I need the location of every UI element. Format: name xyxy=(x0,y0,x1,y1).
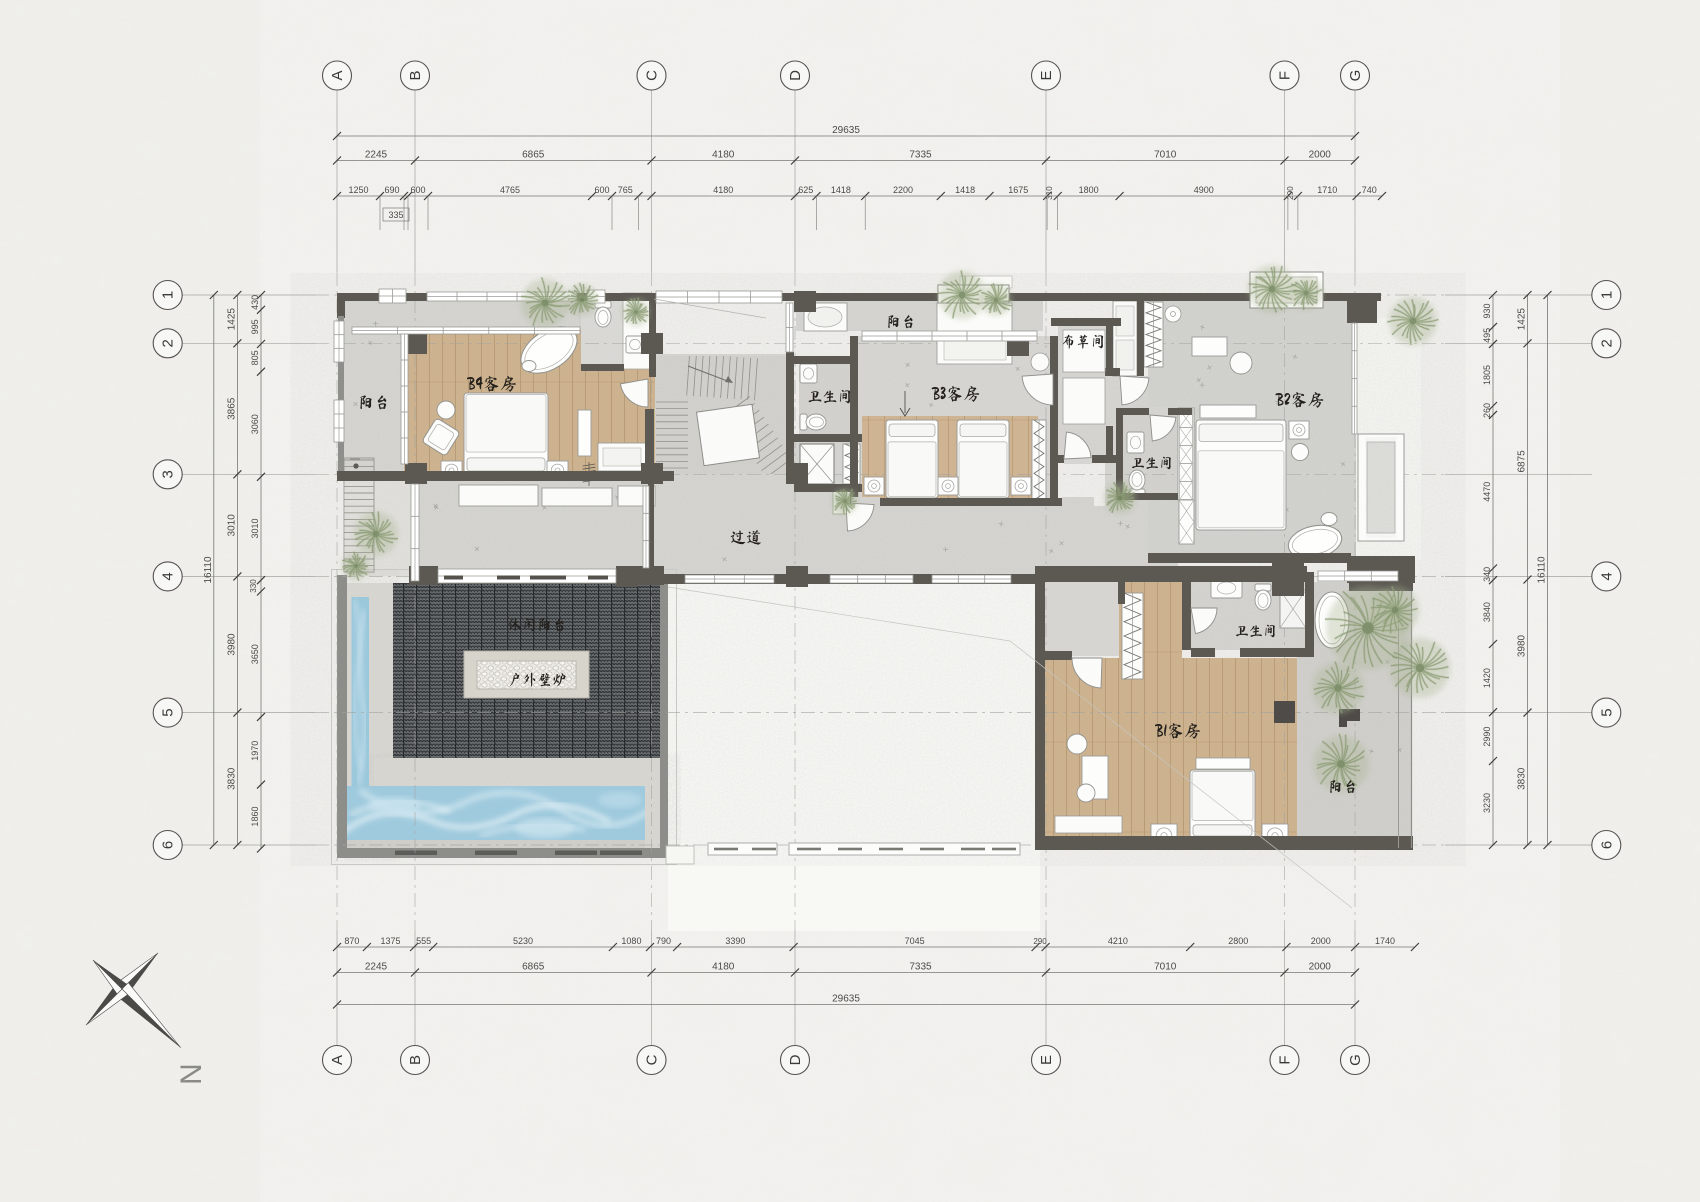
svg-text:1: 1 xyxy=(1598,291,1615,299)
svg-text:4765: 4765 xyxy=(500,185,520,195)
svg-text:4: 4 xyxy=(1598,572,1615,580)
svg-text:740: 740 xyxy=(1362,185,1377,195)
svg-text:16110: 16110 xyxy=(203,556,214,584)
svg-text:2245: 2245 xyxy=(365,962,388,973)
svg-text:2245: 2245 xyxy=(365,150,388,161)
svg-text:340: 340 xyxy=(1482,567,1492,582)
svg-text:G: G xyxy=(1347,1054,1364,1066)
svg-text:430: 430 xyxy=(250,295,260,310)
svg-text:5: 5 xyxy=(1598,708,1615,716)
svg-text:1: 1 xyxy=(160,291,177,299)
svg-text:765: 765 xyxy=(618,185,633,195)
svg-text:600: 600 xyxy=(410,185,425,195)
svg-text:1860: 1860 xyxy=(250,807,260,827)
svg-text:2000: 2000 xyxy=(1309,962,1332,973)
svg-text:3010: 3010 xyxy=(226,514,237,537)
svg-text:555: 555 xyxy=(416,936,431,946)
svg-text:2: 2 xyxy=(1598,339,1615,347)
svg-text:4180: 4180 xyxy=(713,185,733,195)
svg-text:290: 290 xyxy=(1286,186,1295,200)
svg-text:3830: 3830 xyxy=(226,767,237,790)
svg-text:D: D xyxy=(787,1054,804,1065)
svg-text:3830: 3830 xyxy=(1517,767,1528,790)
svg-text:330: 330 xyxy=(249,579,258,593)
svg-text:E: E xyxy=(1038,1055,1055,1065)
svg-text:930: 930 xyxy=(1482,303,1492,318)
svg-text:1080: 1080 xyxy=(621,936,641,946)
svg-text:690: 690 xyxy=(384,185,399,195)
svg-text:2200: 2200 xyxy=(893,185,913,195)
svg-text:3010: 3010 xyxy=(250,518,260,538)
svg-text:3060: 3060 xyxy=(250,414,260,434)
svg-text:1805: 1805 xyxy=(1482,365,1492,385)
svg-text:2800: 2800 xyxy=(1228,936,1248,946)
svg-text:F: F xyxy=(1277,1055,1294,1064)
svg-text:7335: 7335 xyxy=(909,150,932,161)
svg-text:7010: 7010 xyxy=(1154,150,1177,161)
svg-text:2: 2 xyxy=(160,339,177,347)
svg-text:3865: 3865 xyxy=(226,397,237,420)
svg-text:4180: 4180 xyxy=(712,962,735,973)
svg-text:G: G xyxy=(1347,70,1364,82)
svg-text:3980: 3980 xyxy=(1517,634,1528,657)
svg-text:1425: 1425 xyxy=(226,308,237,331)
svg-text:N: N xyxy=(175,1063,208,1085)
svg-text:4210: 4210 xyxy=(1108,936,1128,946)
svg-text:3650: 3650 xyxy=(250,644,260,664)
svg-text:F: F xyxy=(1277,71,1294,80)
svg-text:B: B xyxy=(407,1055,424,1065)
svg-text:6865: 6865 xyxy=(522,150,545,161)
svg-text:7045: 7045 xyxy=(905,936,925,946)
svg-text:6: 6 xyxy=(160,841,177,849)
svg-text:625: 625 xyxy=(798,185,813,195)
svg-text:995: 995 xyxy=(250,319,260,334)
svg-text:495: 495 xyxy=(1482,328,1492,343)
svg-text:4900: 4900 xyxy=(1194,185,1214,195)
svg-text:4180: 4180 xyxy=(712,150,735,161)
svg-text:790: 790 xyxy=(656,936,671,946)
svg-text:1418: 1418 xyxy=(831,185,851,195)
svg-text:290: 290 xyxy=(1033,937,1047,946)
svg-text:1970: 1970 xyxy=(250,741,260,761)
svg-text:600: 600 xyxy=(594,185,609,195)
svg-text:7335: 7335 xyxy=(909,962,932,973)
svg-text:3980: 3980 xyxy=(226,633,237,656)
svg-text:B: B xyxy=(407,70,424,80)
svg-text:1375: 1375 xyxy=(380,936,400,946)
svg-text:1710: 1710 xyxy=(1317,185,1337,195)
svg-text:D: D xyxy=(787,70,804,81)
svg-text:335: 335 xyxy=(388,210,403,220)
svg-text:870: 870 xyxy=(344,936,359,946)
svg-text:3390: 3390 xyxy=(725,936,745,946)
svg-text:1250: 1250 xyxy=(348,185,368,195)
svg-text:16110: 16110 xyxy=(1537,556,1548,584)
svg-text:4: 4 xyxy=(160,572,177,580)
svg-text:310: 310 xyxy=(1045,186,1054,200)
svg-text:2000: 2000 xyxy=(1311,936,1331,946)
svg-text:4470: 4470 xyxy=(1482,482,1492,502)
svg-text:2000: 2000 xyxy=(1309,150,1332,161)
svg-text:1425: 1425 xyxy=(1517,308,1528,331)
svg-text:3: 3 xyxy=(160,470,177,478)
svg-text:260: 260 xyxy=(1482,403,1492,418)
svg-text:E: E xyxy=(1038,70,1055,80)
svg-text:1675: 1675 xyxy=(1008,185,1028,195)
svg-text:C: C xyxy=(644,70,661,81)
svg-text:2990: 2990 xyxy=(1482,727,1492,747)
svg-text:C: C xyxy=(644,1054,661,1065)
svg-text:1418: 1418 xyxy=(955,185,975,195)
svg-text:1420: 1420 xyxy=(1482,668,1492,688)
svg-text:A: A xyxy=(329,1055,346,1065)
svg-text:29635: 29635 xyxy=(832,125,860,136)
svg-text:6875: 6875 xyxy=(1517,450,1528,473)
svg-text:6: 6 xyxy=(1598,841,1615,849)
svg-text:5: 5 xyxy=(160,708,177,716)
svg-text:7010: 7010 xyxy=(1154,962,1177,973)
svg-text:29635: 29635 xyxy=(832,994,860,1005)
svg-text:5230: 5230 xyxy=(513,936,533,946)
svg-text:A: A xyxy=(329,70,346,80)
svg-text:1740: 1740 xyxy=(1375,936,1395,946)
svg-text:3230: 3230 xyxy=(1482,793,1492,813)
svg-text:1800: 1800 xyxy=(1079,185,1099,195)
svg-text:805: 805 xyxy=(250,350,260,365)
svg-text:3840: 3840 xyxy=(1482,602,1492,622)
svg-text:6865: 6865 xyxy=(522,962,545,973)
